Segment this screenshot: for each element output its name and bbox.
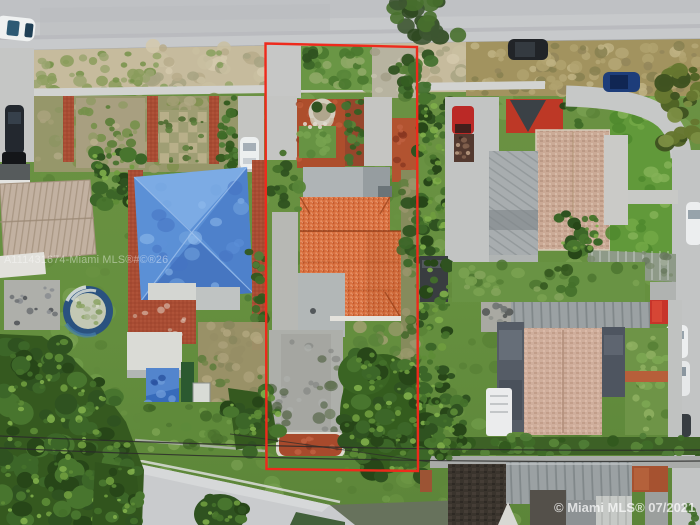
svg-text:A111431674-Miami MLS®#©®26: A111431674-Miami MLS®#©®26	[4, 254, 168, 266]
svg-text:© Miami MLS® 07/2021: © Miami MLS® 07/2021	[554, 500, 695, 515]
